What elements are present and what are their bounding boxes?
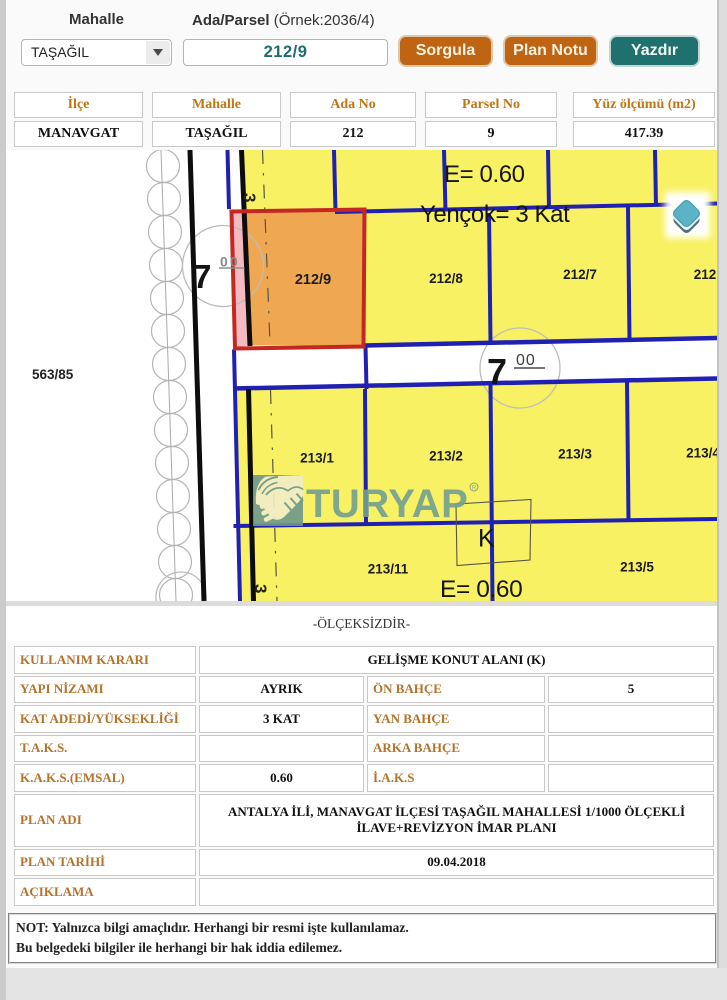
svg-text:213/4: 213/4	[686, 446, 717, 461]
svg-text:563/85: 563/85	[32, 367, 74, 382]
svg-text:Yençok= 3 Kat: Yençok= 3 Kat	[420, 201, 570, 228]
svg-text:00: 00	[220, 254, 240, 270]
svg-text:213/2: 213/2	[429, 449, 463, 464]
svg-text:E= 0.60: E= 0.60	[444, 161, 525, 188]
svg-text:212/8: 212/8	[429, 271, 463, 286]
svg-text:213/11: 213/11	[368, 562, 409, 577]
svg-text:212/7: 212/7	[563, 267, 597, 282]
svg-text:212/9: 212/9	[295, 272, 331, 288]
svg-text:213/5: 213/5	[620, 560, 654, 575]
svg-text:3: 3	[240, 193, 259, 202]
svg-text:R: R	[472, 486, 477, 492]
svg-text:3: 3	[251, 584, 270, 593]
svg-text:7: 7	[487, 351, 507, 392]
svg-text:213/1: 213/1	[300, 451, 334, 466]
svg-text:212: 212	[694, 267, 717, 282]
svg-text:213/3: 213/3	[558, 447, 592, 462]
svg-text:K: K	[478, 525, 495, 553]
svg-text:00: 00	[516, 352, 536, 369]
svg-text:TURYAP: TURYAP	[306, 482, 468, 526]
svg-text:7: 7	[193, 258, 211, 295]
svg-text:E= 0.60: E= 0.60	[440, 576, 522, 601]
